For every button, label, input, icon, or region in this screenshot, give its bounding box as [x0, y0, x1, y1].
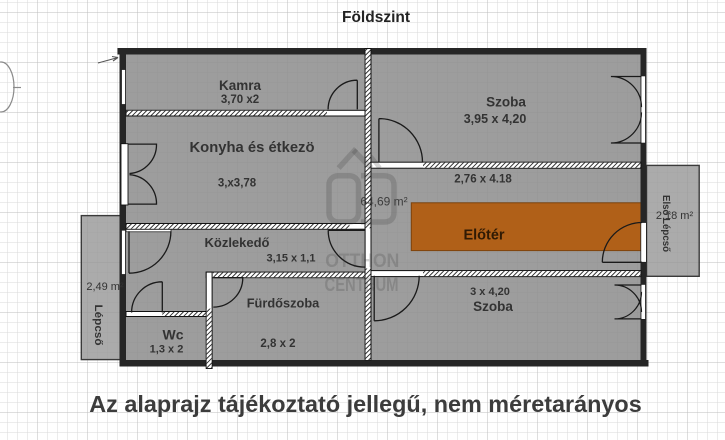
svg-text:CENTRUM: CENTRUM — [325, 274, 399, 296]
svg-text:Szoba: Szoba — [486, 95, 526, 110]
svg-text:Lépcső: Lépcső — [92, 305, 104, 346]
svg-text:3 x 4,20: 3 x 4,20 — [470, 286, 510, 298]
svg-text:Wc: Wc — [163, 327, 184, 343]
svg-text:Szoba: Szoba — [473, 299, 513, 314]
svg-text:1,3 x 2: 1,3 x 2 — [150, 344, 184, 356]
svg-text:Első Lépcső: Első Lépcső — [660, 195, 672, 252]
svg-text:2,8 x 2: 2,8 x 2 — [260, 338, 295, 350]
svg-text:3,x3,78: 3,x3,78 — [218, 178, 257, 190]
svg-text:Közlekedő: Közlekedő — [204, 235, 269, 250]
svg-text:Konyha és étkezö: Konyha és étkezö — [190, 140, 315, 156]
svg-text:OTTHON: OTTHON — [325, 250, 399, 272]
svg-text:3,95 x 4,20: 3,95 x 4,20 — [464, 112, 527, 126]
svg-text:64,69 m²: 64,69 m² — [360, 195, 407, 209]
svg-text:2,49 m²: 2,49 m² — [86, 281, 124, 293]
svg-text:Előtér: Előtér — [463, 228, 504, 244]
svg-text:3,70 x2: 3,70 x2 — [221, 94, 259, 106]
svg-text:Kamra: Kamra — [219, 78, 262, 93]
svg-text:2,76 x 4.18: 2,76 x 4.18 — [454, 174, 512, 186]
svg-text:3,15 x 1,1: 3,15 x 1,1 — [267, 253, 316, 265]
svg-text:Földszint: Földszint — [342, 9, 410, 26]
svg-text:Fürdőszoba: Fürdőszoba — [247, 296, 320, 311]
svg-text:Az alaprajz tájékoztató jelleg: Az alaprajz tájékoztató jellegű, nem mér… — [89, 391, 641, 417]
